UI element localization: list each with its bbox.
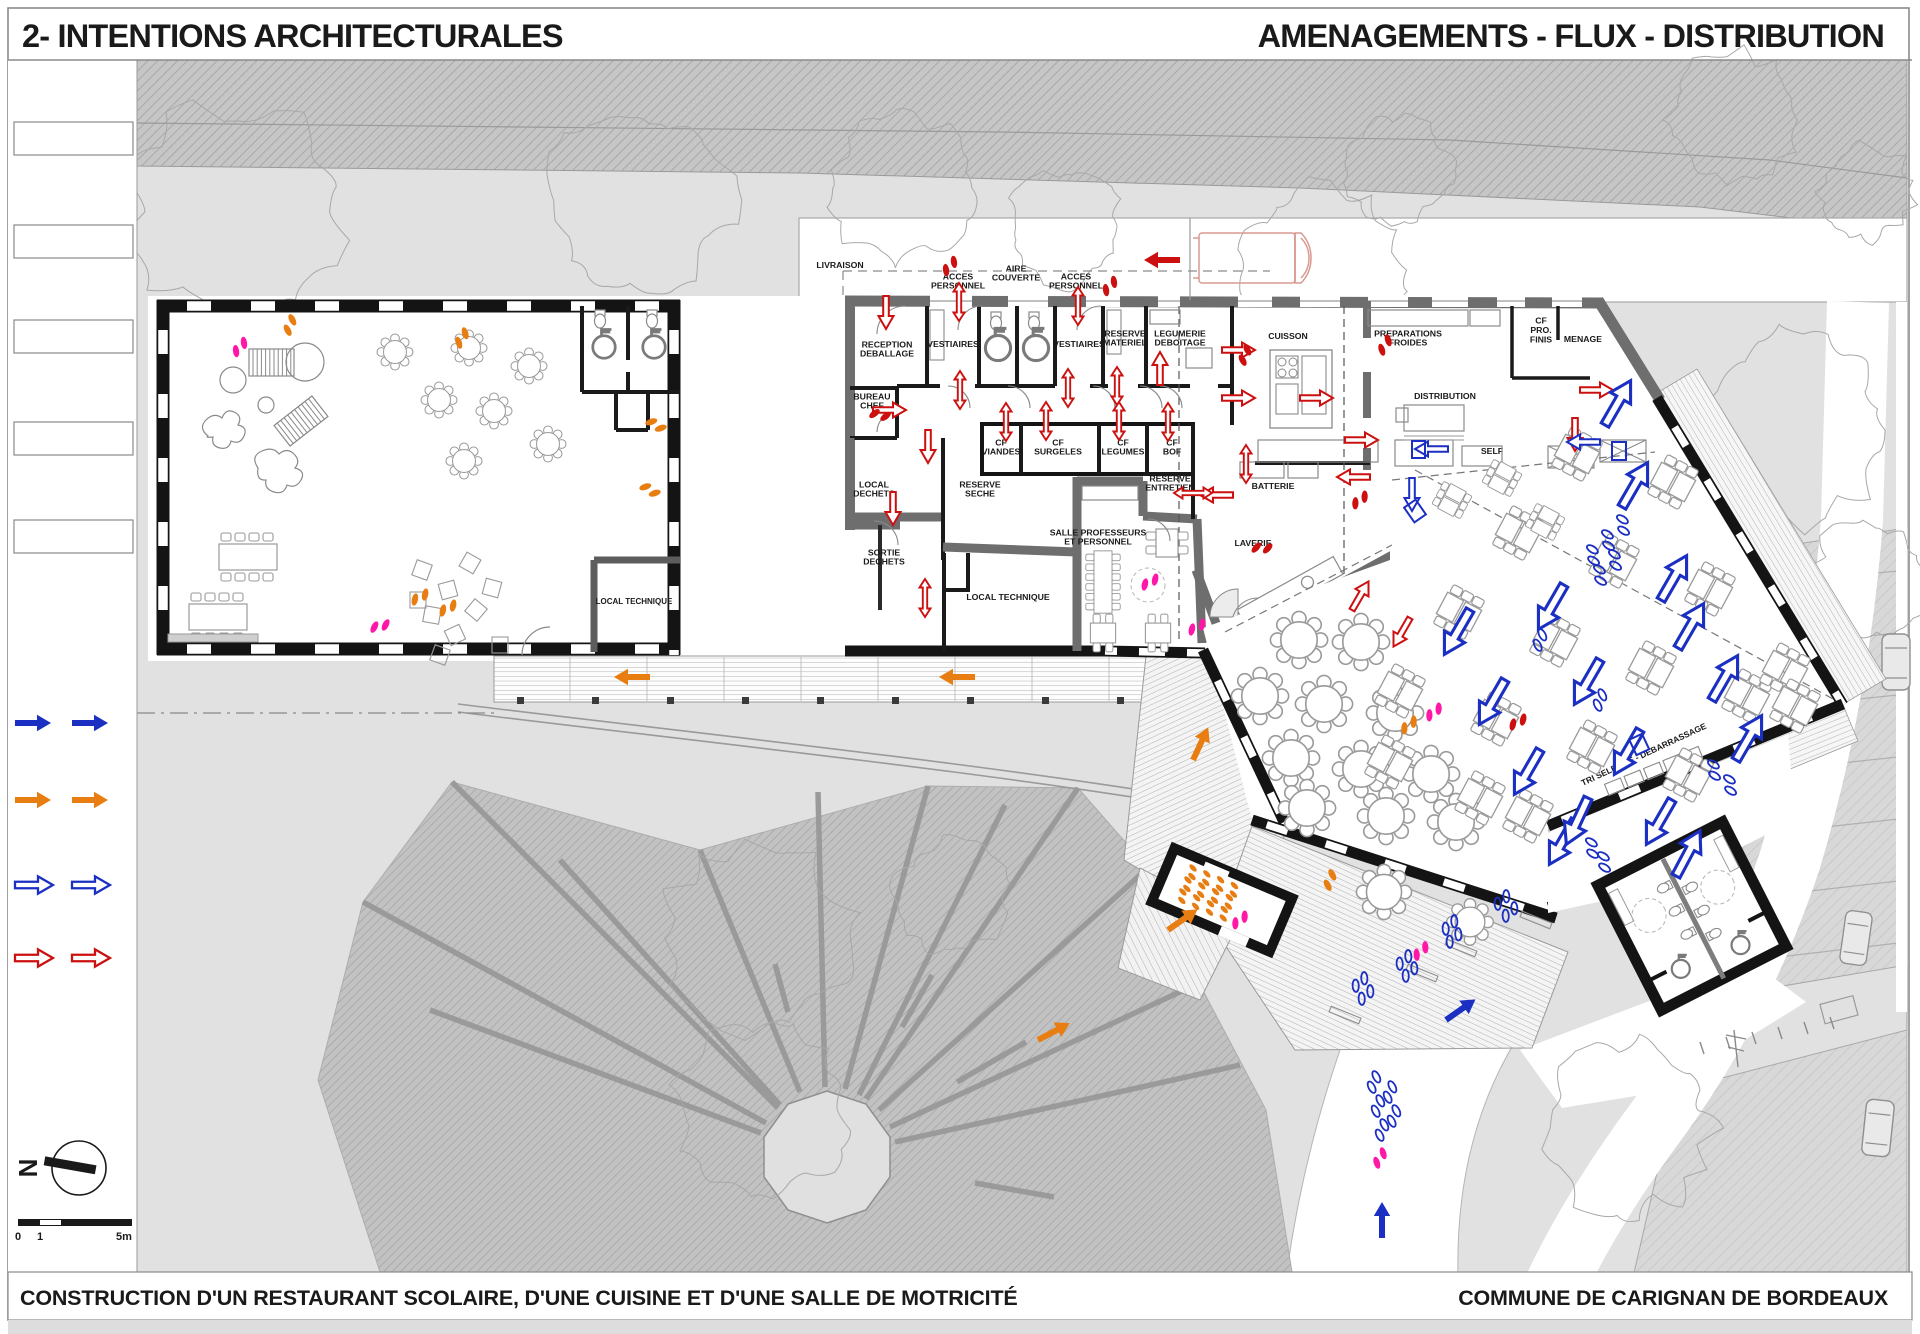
- svg-text:DECHETS: DECHETS: [853, 489, 895, 499]
- svg-text:LOCAL TECHNIQUE: LOCAL TECHNIQUE: [966, 592, 1050, 602]
- svg-text:CUISSON: CUISSON: [1268, 331, 1308, 341]
- svg-text:VESTIAIRES: VESTIAIRES: [1053, 339, 1105, 349]
- svg-text:SELF: SELF: [1481, 446, 1503, 456]
- svg-text:COMMUNE DE CARIGNAN DE BORDEAU: COMMUNE DE CARIGNAN DE BORDEAUX: [1458, 1286, 1889, 1310]
- svg-text:SURGELES: SURGELES: [1034, 447, 1082, 457]
- svg-text:DEBOITAGE: DEBOITAGE: [1155, 338, 1206, 348]
- svg-text:FINIS: FINIS: [1530, 334, 1552, 344]
- svg-text:1: 1: [37, 1231, 43, 1243]
- svg-text:LEGUMES: LEGUMES: [1102, 447, 1145, 457]
- svg-text:DEBALLAGE: DEBALLAGE: [860, 349, 914, 359]
- svg-text:DECHETS: DECHETS: [863, 557, 905, 567]
- svg-text:FROIDES: FROIDES: [1389, 338, 1428, 348]
- svg-text:AMENAGEMENTS - FLUX - DISTRIBU: AMENAGEMENTS - FLUX - DISTRIBUTION: [1258, 18, 1884, 54]
- svg-text:N: N: [13, 1159, 43, 1178]
- svg-text:5m: 5m: [116, 1231, 132, 1243]
- svg-text:2- INTENTIONS ARCHITECTURALES: 2- INTENTIONS ARCHITECTURALES: [22, 18, 563, 54]
- svg-text:DISTRIBUTION: DISTRIBUTION: [1414, 391, 1476, 401]
- svg-text:BATTERIE: BATTERIE: [1252, 481, 1295, 491]
- svg-text:SECHE: SECHE: [965, 489, 995, 499]
- svg-text:LOCAL TECHNIQUE: LOCAL TECHNIQUE: [596, 597, 673, 606]
- svg-text:CONSTRUCTION D'UN RESTAURANT S: CONSTRUCTION D'UN RESTAURANT SCOLAIRE, D…: [20, 1285, 1018, 1310]
- svg-text:LIVRAISON: LIVRAISON: [816, 260, 863, 270]
- svg-text:0: 0: [15, 1231, 21, 1243]
- svg-text:VESTIAIRES: VESTIAIRES: [927, 339, 979, 349]
- svg-text:ET PERSONNEL: ET PERSONNEL: [1064, 537, 1132, 547]
- svg-text:COUVERTE: COUVERTE: [992, 273, 1040, 283]
- svg-text:VIANDES: VIANDES: [982, 447, 1021, 457]
- svg-text:MENAGE: MENAGE: [1564, 334, 1602, 344]
- svg-text:MATERIEL: MATERIEL: [1103, 338, 1147, 348]
- svg-text:BOF: BOF: [1163, 447, 1181, 457]
